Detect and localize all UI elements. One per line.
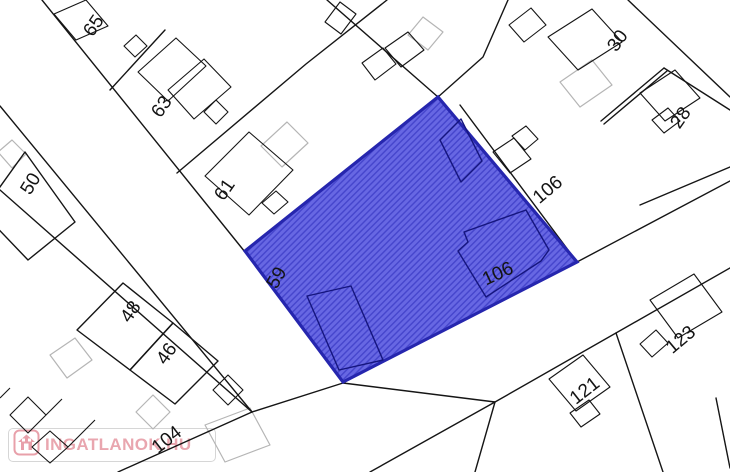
- parcel-label-123: 123: [662, 322, 700, 358]
- parcel-label-61: 61: [210, 175, 239, 204]
- parcel-label-121: 121: [566, 373, 604, 409]
- map-viewport[interactable]: INGATLANOK.HU: [0, 0, 730, 472]
- cadastral-map-canvas[interactable]: 656361504846591061063028121123104: [0, 0, 730, 472]
- parcel-label-48: 48: [116, 297, 145, 326]
- parcel-label-104: 104: [148, 422, 186, 458]
- parcel-label-46: 46: [152, 339, 181, 368]
- parcel-label-106: 106: [529, 172, 567, 208]
- highlighted-parcel-shape[interactable]: [245, 97, 577, 382]
- highlighted-parcel[interactable]: [245, 97, 577, 382]
